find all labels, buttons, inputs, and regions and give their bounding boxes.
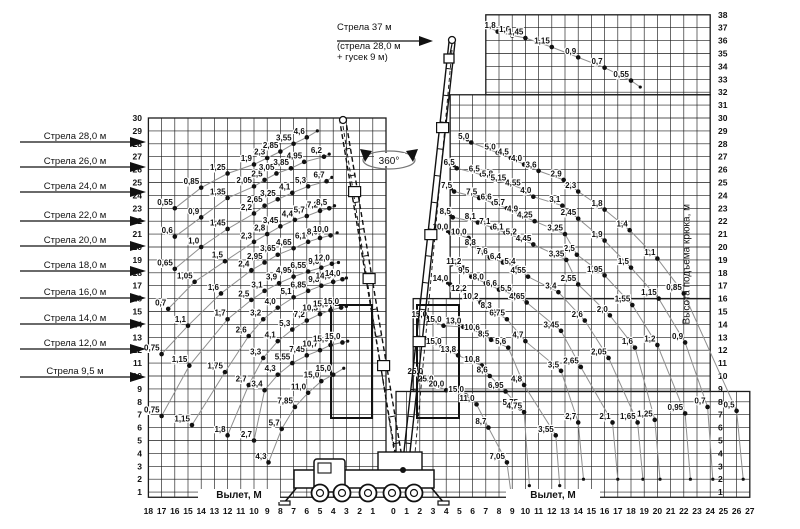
x-tick: 15	[587, 506, 597, 516]
capacity-label: 7,6	[477, 247, 489, 256]
left-outrigger-zone-box	[331, 305, 372, 418]
x-tick: 12	[547, 506, 557, 516]
x-tick: 13	[210, 506, 220, 516]
capacity-label: 9,5	[458, 266, 470, 275]
capacity-label: 14,0	[325, 269, 341, 278]
capacity-label: 3,6	[525, 160, 537, 169]
capacity-label: 1,25	[637, 409, 653, 418]
capacity-label: 11,0	[291, 382, 307, 391]
capacity-label: 8,5	[316, 198, 328, 207]
y-tick: 24	[718, 190, 728, 200]
capacity-label: 8,7	[475, 417, 487, 426]
capacity-label: 0,7	[155, 298, 167, 307]
boom-pulley-block	[349, 187, 361, 197]
y-tick: 6	[718, 423, 723, 433]
x-tick: 13	[560, 506, 570, 516]
capacity-label: 1,0	[188, 237, 200, 246]
x-tick: 26	[732, 506, 742, 516]
capacity-label: 2,7	[236, 375, 248, 384]
y-tick: 19	[718, 255, 728, 265]
capacity-label: 5,4	[504, 257, 516, 266]
capacity-label: 2,95	[247, 252, 263, 261]
x-tick: 1	[404, 506, 409, 516]
x-tick: 14	[196, 506, 206, 516]
capacity-label: 0,95	[668, 403, 684, 412]
diagram-canvas: 1234567891011121314151617181234567891011…	[0, 0, 800, 529]
x-tick: 1	[370, 506, 375, 516]
capacity-label: 6,95	[488, 381, 504, 390]
capacity-label: 8,8	[465, 238, 477, 247]
capacity-label: 2,3	[241, 231, 253, 240]
legend-label: Стрела 20,0 м	[44, 235, 107, 246]
x-tick: 4	[331, 506, 336, 516]
capacity-label: 6,85	[291, 280, 307, 289]
boom-pulley-block	[425, 230, 437, 240]
crane-illustration	[279, 37, 456, 506]
y-tick: 36	[718, 36, 728, 46]
crane-load-height-diagram: 1234567891011121314151617181234567891011…	[0, 0, 800, 529]
capacity-label: 1,15	[641, 288, 657, 297]
y-axis-label-right: Высота подъема крюка, м	[682, 215, 693, 325]
y-tick: 38	[718, 10, 728, 20]
x-axis-label-right: Вылет, М	[506, 489, 600, 502]
y-tick: 32	[718, 87, 728, 97]
y-tick: 34	[718, 61, 728, 71]
y-tick: 13	[133, 332, 143, 342]
x-tick: 2	[357, 506, 362, 516]
legend-label: Стрела 9,5 м	[46, 366, 103, 377]
capacity-label: 11,2	[446, 257, 462, 266]
legend-label: Стрела 24,0 м	[44, 181, 107, 192]
y-tick: 35	[718, 49, 728, 59]
y-tick: 14	[718, 319, 728, 329]
capacity-curve-right: 11,29,58,06,65,54,653,452,652,1	[446, 257, 619, 481]
y-tick: 22	[718, 216, 728, 226]
capacity-label: 0,9	[672, 332, 684, 341]
capacity-label: 4,55	[505, 178, 521, 187]
x-tick: 3	[344, 506, 349, 516]
capacity-label: 4,0	[265, 297, 277, 306]
y-tick: 37	[718, 23, 728, 33]
legend-label: Стрела 18,0 м	[44, 260, 107, 271]
capacity-label: 3,3	[250, 347, 262, 356]
capacity-curve-left: 0,550,851,251,92,32,853,554,6	[157, 127, 319, 211]
capacity-label: 5,3	[279, 319, 291, 328]
capacity-label: 0,75	[144, 344, 160, 353]
boom-37m-annotation: Стрела 37 м (стрела 28,0 м + гусек 9 м)	[337, 22, 447, 63]
capacity-label: 4,1	[279, 182, 291, 191]
capacity-label: 15,0	[324, 297, 340, 306]
capacity-curve-right: 1,81,61,451,150,90,70,55	[485, 21, 642, 89]
capacity-label: 2,7	[241, 430, 253, 439]
x-tick: 9	[265, 506, 270, 516]
capacity-label: 4,95	[287, 151, 303, 160]
capacity-label: 1,15	[174, 415, 190, 424]
y-tick: 26	[718, 165, 728, 175]
capacity-label: 6,7	[313, 171, 325, 180]
y-tick: 27	[133, 152, 143, 162]
capacity-label: 4,55	[510, 266, 526, 275]
capacity-label: 0,9	[188, 207, 200, 216]
capacity-label: 7,05	[489, 452, 505, 461]
right-chart-grid	[396, 15, 750, 497]
capacity-label: 3,25	[547, 224, 563, 233]
outrigger-pad	[438, 501, 449, 505]
annotation-line-2: (стрела 28,0 м	[337, 41, 447, 52]
y-tick: 17	[718, 281, 728, 291]
x-tick: 6	[470, 506, 475, 516]
rotation-arrow-left-icon	[360, 149, 372, 162]
y-tick: 18	[718, 268, 728, 278]
capacity-label: 1,5	[212, 251, 224, 260]
legend-label: Стрела 22,0 м	[44, 210, 107, 221]
rotation-label: 360°	[379, 156, 400, 167]
capacity-label: 0,55	[157, 198, 173, 207]
y-tick: 19	[133, 255, 143, 265]
y-tick: 5	[718, 436, 723, 446]
capacity-label: 2,05	[236, 176, 252, 185]
capacity-label: 0,85	[184, 177, 200, 186]
x-tick: 18	[144, 506, 154, 516]
x-tick: 16	[600, 506, 610, 516]
legend-label: Стрела 14,0 м	[44, 313, 107, 324]
y-tick: 11	[718, 358, 727, 368]
legend-label: Стрела 12,0 м	[44, 338, 107, 349]
y-tick: 11	[133, 358, 142, 368]
capacity-label: 6,6	[486, 279, 498, 288]
y-tick: 8	[137, 397, 142, 407]
y-tick: 33	[718, 74, 728, 84]
capacity-label: 4,25	[517, 211, 533, 220]
x-tick: 19	[639, 506, 649, 516]
capacity-label: 2,7	[565, 412, 577, 421]
capacity-label: 1,5	[618, 257, 630, 266]
x-tick: 5	[318, 506, 323, 516]
y-tick: 27	[718, 152, 728, 162]
capacity-label: 3,45	[543, 320, 559, 329]
x-tick: 2	[417, 506, 422, 516]
capacity-label: 3,25	[260, 189, 276, 198]
capacity-label: 13,8	[441, 345, 457, 354]
capacity-label: 1,8	[214, 425, 226, 434]
capacity-label: 2,0	[597, 305, 609, 314]
capacity-label: 1,6	[622, 337, 634, 346]
capacity-label: 1,1	[175, 315, 187, 324]
x-tick: 5	[457, 506, 462, 516]
boom-pulley-block	[363, 274, 375, 284]
capacity-label: 1,05	[177, 271, 193, 280]
boom-pulley-block	[378, 361, 390, 371]
capacity-label: 1,45	[508, 28, 524, 37]
outrigger-pad	[279, 501, 290, 505]
legend-label: Стрела 16,0 м	[44, 287, 107, 298]
x-tick: 17	[613, 506, 623, 516]
capacity-label: 3,55	[276, 133, 292, 142]
capacity-label: 20,0	[429, 380, 445, 389]
capacity-label: 0,55	[613, 70, 629, 79]
y-tick: 29	[133, 126, 143, 136]
capacity-label: 1,2	[644, 335, 656, 344]
y-tick: 3	[718, 461, 723, 471]
y-tick: 21	[133, 229, 143, 239]
x-tick: 24	[705, 506, 715, 516]
x-tick: 22	[679, 506, 689, 516]
x-tick: 18	[626, 506, 636, 516]
legend-label: Стрела 26,0 м	[44, 156, 107, 167]
x-tick: 27	[745, 506, 755, 516]
x-tick: 6	[304, 506, 309, 516]
annotation-line-3: + гусек 9 м)	[337, 52, 447, 63]
x-tick: 7	[483, 506, 488, 516]
cab-window	[318, 463, 331, 473]
x-tick: 15	[183, 506, 193, 516]
capacity-label: 5,3	[295, 176, 307, 185]
x-tick: 7	[291, 506, 296, 516]
capacity-label: 2,2	[241, 203, 253, 212]
capacity-label: 7,85	[277, 396, 293, 405]
boom-tip-pulley-icon	[449, 37, 456, 44]
capacity-label: 2,45	[561, 208, 577, 217]
capacity-label: 0,65	[157, 258, 173, 267]
y-tick: 4	[718, 448, 723, 458]
capacity-label: 4,4	[282, 209, 294, 218]
capacity-label: 1,45	[210, 218, 226, 227]
capacity-label: 4,3	[255, 452, 267, 461]
wheel-icon	[384, 485, 401, 502]
capacity-label: 5,0	[485, 142, 497, 151]
capacity-label: 5,0	[458, 132, 470, 141]
capacity-curve-right: 8,58,17,16,15,24,453,352,552,01,61,25	[440, 207, 662, 481]
y-tick: 20	[718, 242, 728, 252]
capacity-label: 8,6	[477, 366, 489, 375]
capacity-label: 1,8	[591, 199, 603, 208]
capacity-label: 0,7	[591, 57, 603, 66]
capacity-label: 1,65	[620, 412, 636, 421]
capacity-label: 15,0	[426, 315, 442, 324]
y-tick: 15	[718, 307, 728, 317]
x-tick: 23	[692, 506, 702, 516]
boom-pivot	[400, 467, 406, 473]
y-tick: 31	[718, 100, 728, 110]
capacity-label: 2,85	[263, 141, 279, 150]
capacity-label: 0,5	[723, 400, 735, 409]
y-tick: 28	[718, 139, 728, 149]
x-tick: 0	[391, 506, 396, 516]
x-tick: 11	[236, 506, 245, 516]
capacity-label: 1,4	[617, 220, 629, 229]
capacity-label: 12,0	[314, 253, 330, 262]
capacity-label: 4,65	[509, 292, 525, 301]
capacity-label: 4,3	[265, 364, 277, 373]
capacity-label: 0,75	[144, 405, 160, 414]
y-tick: 7	[137, 410, 142, 420]
capacity-label: 4,45	[516, 234, 532, 243]
capacity-label: 6,5	[444, 158, 456, 167]
x-tick: 16	[170, 506, 180, 516]
capacity-label: 4,5	[498, 147, 510, 156]
x-tick: 10	[249, 506, 259, 516]
capacity-label: 8,1	[465, 212, 477, 221]
capacity-label: 6,2	[311, 146, 323, 155]
capacity-label: 2,4	[238, 260, 250, 269]
y-tick: 23	[718, 203, 728, 213]
x-tick: 25	[719, 506, 729, 516]
capacity-label: 1,1	[644, 248, 656, 257]
y-tick: 30	[718, 113, 728, 123]
x-axis-label-left: Вылет, М	[198, 489, 280, 502]
capacity-label: 1,75	[207, 362, 223, 371]
capacity-label: 5,7	[494, 198, 506, 207]
capacity-label: 6,4	[490, 252, 502, 261]
capacity-label: 6,5	[469, 164, 481, 173]
y-tick: 1	[718, 487, 723, 497]
rotation-arrow-right-icon	[406, 149, 418, 162]
y-tick: 17	[133, 281, 143, 291]
capacity-label: 4,65	[276, 238, 292, 247]
capacity-label: 2,6	[236, 326, 248, 335]
capacity-label: 7,1	[479, 217, 491, 226]
capacity-label: 0,9	[565, 47, 577, 56]
capacity-label: 6,75	[489, 309, 505, 318]
x-tick: 10	[521, 506, 531, 516]
y-tick: 4	[137, 448, 142, 458]
capacity-label: 2,55	[561, 274, 577, 283]
x-tick: 8	[278, 506, 283, 516]
capacity-label: 1,25	[210, 163, 226, 172]
y-tick: 29	[718, 126, 728, 136]
capacity-label: 2,3	[565, 181, 577, 190]
capacity-label: 10,8	[464, 355, 480, 364]
x-tick: 9	[510, 506, 515, 516]
legend-label: Стрела 28,0 м	[44, 131, 107, 142]
capacity-label: 14,0	[433, 274, 449, 283]
capacity-label: 4,1	[265, 331, 277, 340]
capacity-label: 0,85	[666, 283, 682, 292]
y-tick: 16	[718, 294, 728, 304]
wheel-icon	[360, 485, 377, 502]
y-tick: 15	[133, 307, 143, 317]
capacity-label: 1,55	[615, 295, 631, 304]
capacity-label: 5,55	[275, 353, 291, 362]
x-tick: 21	[666, 506, 676, 516]
capacity-label: 1,6	[208, 283, 220, 292]
boom-length-legend: Стрела 28,0 мСтрела 26,0 мСтрела 24,0 мС…	[20, 131, 146, 382]
x-tick: 12	[223, 506, 233, 516]
y-tick: 30	[133, 113, 143, 123]
y-tick: 21	[718, 229, 728, 239]
y-tick: 25	[133, 178, 143, 188]
x-tick: 20	[653, 506, 663, 516]
turret	[378, 452, 422, 472]
capacity-label: 6,6	[481, 193, 493, 202]
x-tick: 14	[573, 506, 583, 516]
wheel-icon	[334, 485, 351, 502]
capacity-label: 2,9	[551, 169, 563, 178]
capacity-label: 4,6	[294, 127, 306, 136]
capacity-label: 10,2	[463, 292, 479, 301]
capacity-label: 6,1	[492, 222, 504, 231]
capacity-label: 3,1	[251, 280, 263, 289]
capacity-label: 3,35	[549, 249, 565, 258]
capacity-label: 3,5	[548, 360, 560, 369]
rotation-symbol: 360°	[360, 149, 418, 169]
capacity-label: 7,5	[466, 187, 478, 196]
capacity-label: 15,0	[325, 332, 341, 341]
capacity-label: 4,7	[512, 331, 524, 340]
capacity-label: 1,15	[172, 355, 188, 364]
y-tick: 5	[137, 436, 142, 446]
capacity-curve-right: 15,013,810,88,66,955,754,75	[426, 337, 531, 487]
y-tick: 23	[133, 203, 143, 213]
capacity-label: 6,55	[291, 261, 307, 270]
wheel-icon	[312, 485, 329, 502]
capacity-label: 4,8	[511, 375, 523, 384]
capacity-label: 8,5	[478, 329, 490, 338]
annotation-line-1: Стрела 37 м	[337, 22, 447, 33]
capacity-label: 10,0	[451, 227, 467, 236]
capacity-label: 10,0	[313, 225, 329, 234]
capacity-label: 3,45	[263, 216, 279, 225]
capacity-label: 15,0	[316, 364, 332, 373]
capacity-label: 7,5	[441, 181, 453, 190]
capacity-label: 0,6	[162, 226, 174, 235]
y-tick: 2	[137, 474, 142, 484]
capacity-label: 2,65	[563, 356, 579, 365]
capacity-label: 2,6	[572, 310, 584, 319]
capacity-label: 3,1	[549, 195, 561, 204]
y-tick: 6	[137, 423, 142, 433]
capacity-label: 1,95	[587, 265, 603, 274]
y-tick: 3	[137, 461, 142, 471]
capacity-label: 1,9	[591, 230, 603, 239]
wheel-icon	[406, 485, 423, 502]
capacity-label: 2,5	[238, 289, 250, 298]
capacity-label: 1,9	[241, 154, 253, 163]
capacity-label: 13,0	[446, 316, 462, 325]
capacity-label: 1,15	[534, 37, 550, 46]
capacity-label: 8,5	[440, 207, 452, 216]
boom-pulley-block	[437, 123, 449, 133]
capacity-label: 3,2	[250, 309, 262, 318]
capacity-label: 8,0	[473, 273, 485, 282]
capacity-label: 15,0	[448, 385, 464, 394]
capacity-label: 5,6	[495, 337, 507, 346]
x-tick: 3	[431, 506, 436, 516]
y-tick: 7	[718, 410, 723, 420]
y-tick: 8	[718, 397, 723, 407]
capacity-label: 5,7	[269, 418, 281, 427]
x-tick: 11	[534, 506, 543, 516]
capacity-label: 3,4	[251, 380, 263, 389]
capacity-label: 11,0	[459, 394, 475, 403]
capacity-label: 5,7	[294, 206, 306, 215]
capacity-label: 6,1	[295, 231, 307, 240]
capacity-label: 3,4	[545, 282, 557, 291]
capacity-label: 2,5	[564, 244, 576, 253]
capacity-label: 4,75	[507, 402, 523, 411]
capacity-label: 3,65	[260, 244, 276, 253]
boom-tip-pulley-icon	[340, 117, 347, 124]
y-tick: 9	[718, 384, 723, 394]
capacity-label: 2,05	[591, 347, 607, 356]
capacity-label: 2,1	[599, 412, 611, 421]
boom-pulley-block	[413, 337, 425, 347]
capacity-label: 4,0	[511, 154, 523, 163]
y-tick: 9	[137, 384, 142, 394]
capacity-label: 1,8	[485, 21, 497, 30]
y-tick: 13	[718, 332, 728, 342]
y-tick: 1	[137, 487, 142, 497]
